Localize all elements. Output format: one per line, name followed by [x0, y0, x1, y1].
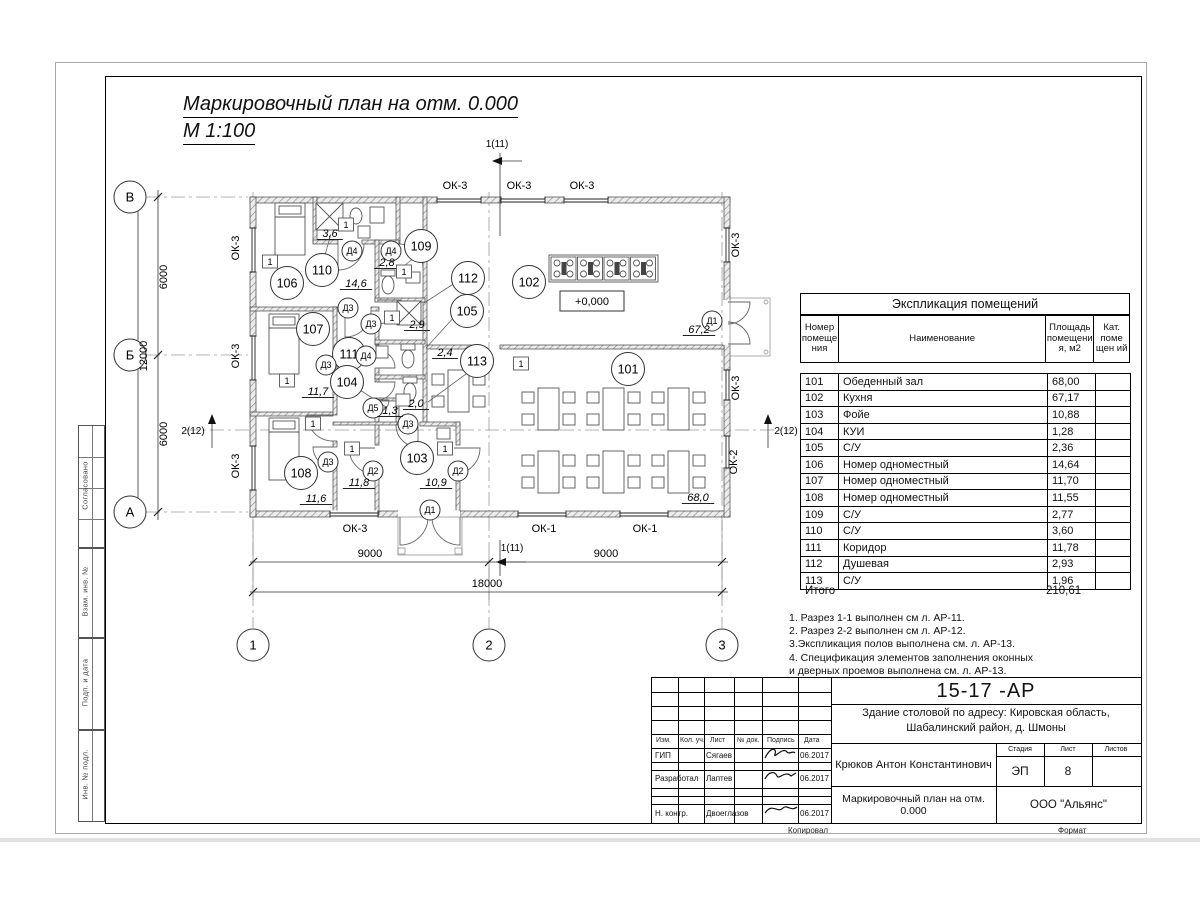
- burner: [554, 271, 560, 277]
- stove-panel: [588, 262, 593, 275]
- furniture-item: [603, 451, 624, 493]
- furniture-item: [628, 414, 640, 425]
- dim-text: 9000: [594, 548, 618, 560]
- stamp-name: Двоеглазов: [706, 809, 749, 818]
- schedule-cell: 3,60: [1048, 523, 1096, 540]
- furniture-item: [538, 388, 559, 430]
- furniture-item: [522, 455, 534, 466]
- furniture-item: [401, 344, 415, 350]
- schedule-cell: 11,78: [1048, 539, 1096, 556]
- furniture-item: [273, 317, 295, 325]
- marker-text: 1: [401, 267, 406, 277]
- area-text: 2,8: [378, 257, 395, 269]
- furniture-item: [381, 270, 395, 276]
- bubble-text: Д4: [385, 246, 396, 256]
- bubble-text: 106: [277, 277, 298, 291]
- burner: [567, 260, 573, 266]
- bubble-text: 2: [485, 638, 492, 653]
- table-row: 101Обеденный зал68,00: [801, 374, 1131, 391]
- bubble-text: 108: [291, 467, 312, 481]
- schedule-header: Номер помеще ния Наименование Площадь по…: [800, 315, 1130, 363]
- furniture-item: [587, 392, 599, 403]
- win-text: ОК-3: [343, 523, 368, 535]
- furniture-item: [279, 206, 301, 214]
- furniture-item: [603, 388, 624, 430]
- schedule-cell: КУИ: [839, 423, 1048, 440]
- bubble-text: 112: [458, 272, 478, 286]
- schedule-cell: С/У: [839, 573, 1048, 590]
- bubble-text: В: [126, 190, 135, 205]
- burner: [607, 260, 613, 266]
- stamp-col-list: Лист: [710, 737, 725, 744]
- furniture-item: [587, 414, 599, 425]
- schedule-cell: 111: [801, 539, 839, 556]
- marker-text: 1: [343, 220, 348, 230]
- table-row: 108Номер одноместный11,55: [801, 490, 1131, 507]
- schedule-cell: [1096, 440, 1131, 457]
- table-row: 102Кухня67,17: [801, 390, 1131, 407]
- level-value: +0,000: [575, 296, 609, 308]
- marker-text: 1: [284, 376, 289, 386]
- furniture-item: [448, 370, 469, 412]
- stamp-role: ГИП: [655, 751, 671, 760]
- area-text: 14,6: [345, 278, 367, 290]
- area-text: 11,7: [308, 386, 329, 398]
- schedule-cell: С/У: [839, 440, 1048, 457]
- sheet-label: Лист: [1044, 743, 1092, 756]
- stove-panel: [641, 262, 646, 275]
- table-row: 109С/У2,77: [801, 506, 1131, 523]
- dim-text: 6000: [158, 422, 170, 446]
- stamp-col-koluch: Кол. уч.: [680, 737, 705, 744]
- table-row: 104КУИ1,28: [801, 423, 1131, 440]
- drawing-sheet: { "sheet": { "title": "Маркировочный пла…: [0, 0, 1200, 900]
- table-row: 110С/У3,60: [801, 523, 1131, 540]
- document-number: 15-17 -АР: [831, 678, 1141, 704]
- stamp-col-dok: № док.: [737, 737, 759, 744]
- burner: [647, 271, 653, 277]
- stamp-col-podpis: Подпись: [767, 737, 795, 744]
- schedule-cell: 101: [801, 374, 839, 391]
- schedule-cell: 2,36: [1048, 440, 1096, 457]
- schedule-cell: Номер одноместный: [839, 490, 1048, 507]
- furniture-item: [522, 392, 534, 403]
- schedule-cell: 105: [801, 440, 839, 457]
- area-text: 3,6: [322, 228, 338, 240]
- schedule-cell: 109: [801, 506, 839, 523]
- furniture-item: [522, 477, 534, 488]
- stamp-role: Н. контр.: [655, 809, 688, 818]
- stove-panel: [615, 262, 620, 275]
- furniture-item: [652, 455, 664, 466]
- burner: [634, 271, 640, 277]
- schedule-cell: [1096, 556, 1131, 573]
- bubble-text: 110: [312, 264, 332, 278]
- win-text: ОК-1: [633, 523, 658, 535]
- marker-text: 1: [442, 444, 447, 454]
- stage-label: Стадия: [996, 743, 1044, 756]
- schedule-col-name: Наименование: [839, 316, 1046, 362]
- schedule-cell: [1096, 506, 1131, 523]
- schedule-cell: С/У: [839, 506, 1048, 523]
- bubble-text: Д4: [360, 351, 371, 361]
- schedule-cell: 103: [801, 407, 839, 424]
- furniture-item: [358, 226, 370, 238]
- company-name: ООО "Альянс": [996, 786, 1141, 823]
- schedule-col-number: Номер помеще ния: [801, 316, 839, 362]
- schedule-cell: 112: [801, 556, 839, 573]
- schedule-cell: 11,70: [1048, 473, 1096, 490]
- furniture-item: [473, 396, 485, 407]
- dim-text: 9000: [358, 548, 382, 560]
- furniture-item: [538, 451, 559, 493]
- signature: [763, 800, 799, 818]
- bubble-text: 3: [718, 638, 725, 653]
- sec-text: 2(12): [181, 426, 204, 437]
- toilet: [402, 350, 414, 368]
- furniture-item: [563, 414, 575, 425]
- table-row: 111Коридор11,78: [801, 539, 1131, 556]
- signature: [763, 767, 797, 785]
- schedule-cell: 68,00: [1048, 374, 1096, 391]
- furniture-item: [652, 477, 664, 488]
- stove-panel: [562, 262, 567, 275]
- burner: [620, 260, 626, 266]
- table-row: 106Номер одноместный14,64: [801, 456, 1131, 473]
- bubble-text: Д2: [452, 466, 463, 476]
- area-text: 2,0: [407, 398, 424, 410]
- sec-text: 1(11): [486, 139, 509, 150]
- bubble-text: 1: [249, 638, 256, 653]
- marker-text: 1: [267, 257, 272, 267]
- schedule-cell: 104: [801, 423, 839, 440]
- schedule-cell: Обеденный зал: [839, 374, 1048, 391]
- schedule-col-cat: Кат. поме щен ий: [1094, 316, 1129, 362]
- furniture-item: [437, 428, 450, 439]
- format-label: Формат: [1058, 826, 1086, 835]
- marker-text: 1: [349, 444, 354, 454]
- schedule-cell: 108: [801, 490, 839, 507]
- schedule-cell: [1096, 490, 1131, 507]
- schedule-title: Экспликация помещений: [800, 293, 1130, 315]
- schedule-cell: [1096, 573, 1131, 590]
- furniture-item: [522, 414, 534, 425]
- table-row: 103Фойе10,88: [801, 407, 1131, 424]
- win-text: ОК-3: [730, 376, 742, 401]
- schedule-cell: 10,88: [1048, 407, 1096, 424]
- win-text: ОК-3: [730, 233, 742, 258]
- furniture-item: [273, 421, 295, 429]
- win-text: ОК-3: [443, 180, 468, 192]
- furniture-item: [432, 374, 444, 385]
- burner: [634, 260, 640, 266]
- stamp-col-data: Дата: [804, 737, 820, 744]
- schedule-cell: 2,93: [1048, 556, 1096, 573]
- schedule-cell: 107: [801, 473, 839, 490]
- schedule-cell: [1096, 374, 1131, 391]
- furniture-item: [652, 392, 664, 403]
- schedule-cell: 11,55: [1048, 490, 1096, 507]
- burner: [607, 271, 613, 277]
- win-text: ОК-3: [230, 344, 242, 369]
- win-text: ОК-3: [507, 180, 532, 192]
- furniture-item: [652, 414, 664, 425]
- notes: 1. Разрез 1-1 выполнен см л. АР-11. 2. Р…: [789, 612, 1089, 678]
- sheets-total: [1092, 756, 1140, 786]
- bubble-text: 103: [407, 452, 428, 466]
- title-block: Изм. Кол. уч. Лист № док. Подпись Дата Г…: [651, 677, 1142, 824]
- win-text: ОК-2: [728, 450, 740, 475]
- stamp-name: Сягаев: [706, 751, 732, 760]
- burner: [554, 260, 560, 266]
- signature: [763, 744, 797, 762]
- sheets-label: Листов: [1092, 743, 1140, 756]
- sec-text: 2(12): [774, 426, 797, 437]
- furniture-item: [403, 377, 417, 383]
- furniture-item: [668, 451, 689, 493]
- toilet: [382, 276, 394, 294]
- furniture-item: [693, 455, 705, 466]
- win-text: ОК-3: [230, 454, 242, 479]
- stage-value: ЭП: [996, 756, 1044, 786]
- dim-text: 6000: [158, 265, 170, 289]
- win-text: ОК-3: [230, 236, 242, 261]
- win-text: ОК-3: [570, 180, 595, 192]
- author-name: Крюков Антон Константинович: [831, 743, 996, 786]
- schedule-cell: Душевая: [839, 556, 1048, 573]
- area-text: 2,9: [408, 319, 424, 331]
- stamp-drawing-title: Маркировочный план на отм. 0.000: [831, 786, 996, 823]
- schedule-cell: [1096, 423, 1131, 440]
- furniture-item: [563, 455, 575, 466]
- note-line: 1. Разрез 1-1 выполнен см л. АР-11.: [789, 612, 1089, 625]
- bubble-text: Д3: [365, 319, 376, 329]
- object-name-line2: Шабалинский район, д. Шмоны: [831, 722, 1141, 734]
- furniture-item: [376, 346, 388, 358]
- burner: [581, 271, 587, 277]
- stamp-col-izm: Изм.: [656, 737, 671, 744]
- furniture-item: [628, 392, 640, 403]
- object-name-line1: Здание столовой по адресу: Кировская обл…: [831, 707, 1141, 719]
- sec-text: 1(11): [501, 543, 524, 554]
- bubble-text: 104: [337, 376, 358, 390]
- bubble-text: 113: [467, 355, 487, 369]
- level-mark: +0,000: [560, 291, 624, 311]
- stamp-date: 06.2017: [800, 809, 829, 818]
- bubble-text: 105: [457, 305, 478, 319]
- bubble-text: Д3: [342, 303, 353, 313]
- schedule-cell: [1096, 407, 1131, 424]
- schedule-col-area: Площадь помещени я, м2: [1046, 316, 1094, 362]
- table-row: 105С/У2,36: [801, 440, 1131, 457]
- furniture-item: [587, 455, 599, 466]
- bubble-text: 109: [411, 240, 432, 254]
- furniture-item: [563, 477, 575, 488]
- bubble-text: 102: [519, 276, 540, 290]
- schedule-cell: Фойе: [839, 407, 1048, 424]
- furniture-item: [693, 477, 705, 488]
- bubble-text: Д3: [402, 419, 413, 429]
- schedule-cell: 2,77: [1048, 506, 1096, 523]
- stamp-date: 06.2017: [800, 774, 829, 783]
- schedule-cell: [1096, 390, 1131, 407]
- table-row: 112Душевая2,93: [801, 556, 1131, 573]
- schedule-cell: Коридор: [839, 539, 1048, 556]
- furniture-item: [628, 455, 640, 466]
- schedule-total-label: Итого: [805, 585, 835, 597]
- area-text: 67,2: [688, 324, 709, 336]
- marker-text: 1: [310, 419, 315, 429]
- schedule-cell: 1,28: [1048, 423, 1096, 440]
- note-line: 2. Разрез 2-2 выполнен см л. АР-12.: [789, 625, 1089, 638]
- bubble-text: Д5: [367, 403, 378, 413]
- furniture-item: [587, 477, 599, 488]
- schedule-table: 101Обеденный зал68,00102Кухня67,17103Фой…: [800, 373, 1131, 590]
- schedule-cell: Номер одноместный: [839, 456, 1048, 473]
- furniture-item: [693, 392, 705, 403]
- burner: [567, 271, 573, 277]
- furniture-item: [370, 207, 384, 223]
- area-text: 10,9: [425, 477, 446, 489]
- bubble-text: Д1: [424, 505, 435, 515]
- schedule-cell: [1096, 523, 1131, 540]
- marker-text: 1: [389, 313, 394, 323]
- burner: [620, 271, 626, 277]
- bubble-text: А: [126, 505, 135, 520]
- stamp-date: 06.2017: [800, 751, 829, 760]
- schedule-total-value: 210,61: [1046, 585, 1081, 597]
- bubble-text: Д3: [322, 457, 333, 467]
- schedule-cell: 67,17: [1048, 390, 1096, 407]
- stamp-role: Разработал: [655, 774, 699, 783]
- dim-text: 18000: [472, 578, 503, 590]
- furniture-item: [668, 388, 689, 430]
- win-text: ОК-1: [532, 523, 557, 535]
- schedule-cell: С/У: [839, 523, 1048, 540]
- furniture-item: [693, 414, 705, 425]
- dim-text: 12000: [138, 341, 150, 372]
- burner: [647, 260, 653, 266]
- note-line: 3.Экспликация полов выполнена см. л. АР-…: [789, 638, 1089, 651]
- note-line: 4. Спецификация элементов заполнения око…: [789, 652, 1089, 665]
- area-text: 1,3: [382, 405, 398, 417]
- bubble-text: Д4: [346, 246, 357, 256]
- furniture-item: [563, 392, 575, 403]
- bubble-text: Б: [126, 348, 135, 363]
- bubble-text: 101: [618, 363, 639, 377]
- sheet-number: 8: [1044, 756, 1092, 786]
- schedule-cell: 102: [801, 390, 839, 407]
- furniture-item: [628, 477, 640, 488]
- schedule-cell: [1096, 456, 1131, 473]
- kopiroval-label: Копировал: [788, 826, 828, 835]
- schedule-cell: 110: [801, 523, 839, 540]
- schedule-cell: Номер одноместный: [839, 473, 1048, 490]
- schedule-cell: 106: [801, 456, 839, 473]
- area-text: 11,8: [349, 477, 370, 489]
- schedule-cell: 14,64: [1048, 456, 1096, 473]
- schedule-cell: Кухня: [839, 390, 1048, 407]
- burner: [594, 260, 600, 266]
- area-text: 11,6: [306, 493, 327, 505]
- area-text: 2,4: [436, 347, 452, 359]
- stamp-name: Лаптев: [706, 774, 732, 783]
- schedule-cell: [1096, 539, 1131, 556]
- bubble-text: Д3: [320, 360, 331, 370]
- schedule-cell: [1096, 473, 1131, 490]
- burner: [581, 260, 587, 266]
- bubble-text: Д2: [367, 466, 378, 476]
- area-text: 68,0: [687, 492, 709, 504]
- bubble-text: 107: [303, 323, 324, 337]
- burner: [594, 271, 600, 277]
- marker-text: 1: [518, 359, 523, 369]
- table-row: 107Номер одноместный11,70: [801, 473, 1131, 490]
